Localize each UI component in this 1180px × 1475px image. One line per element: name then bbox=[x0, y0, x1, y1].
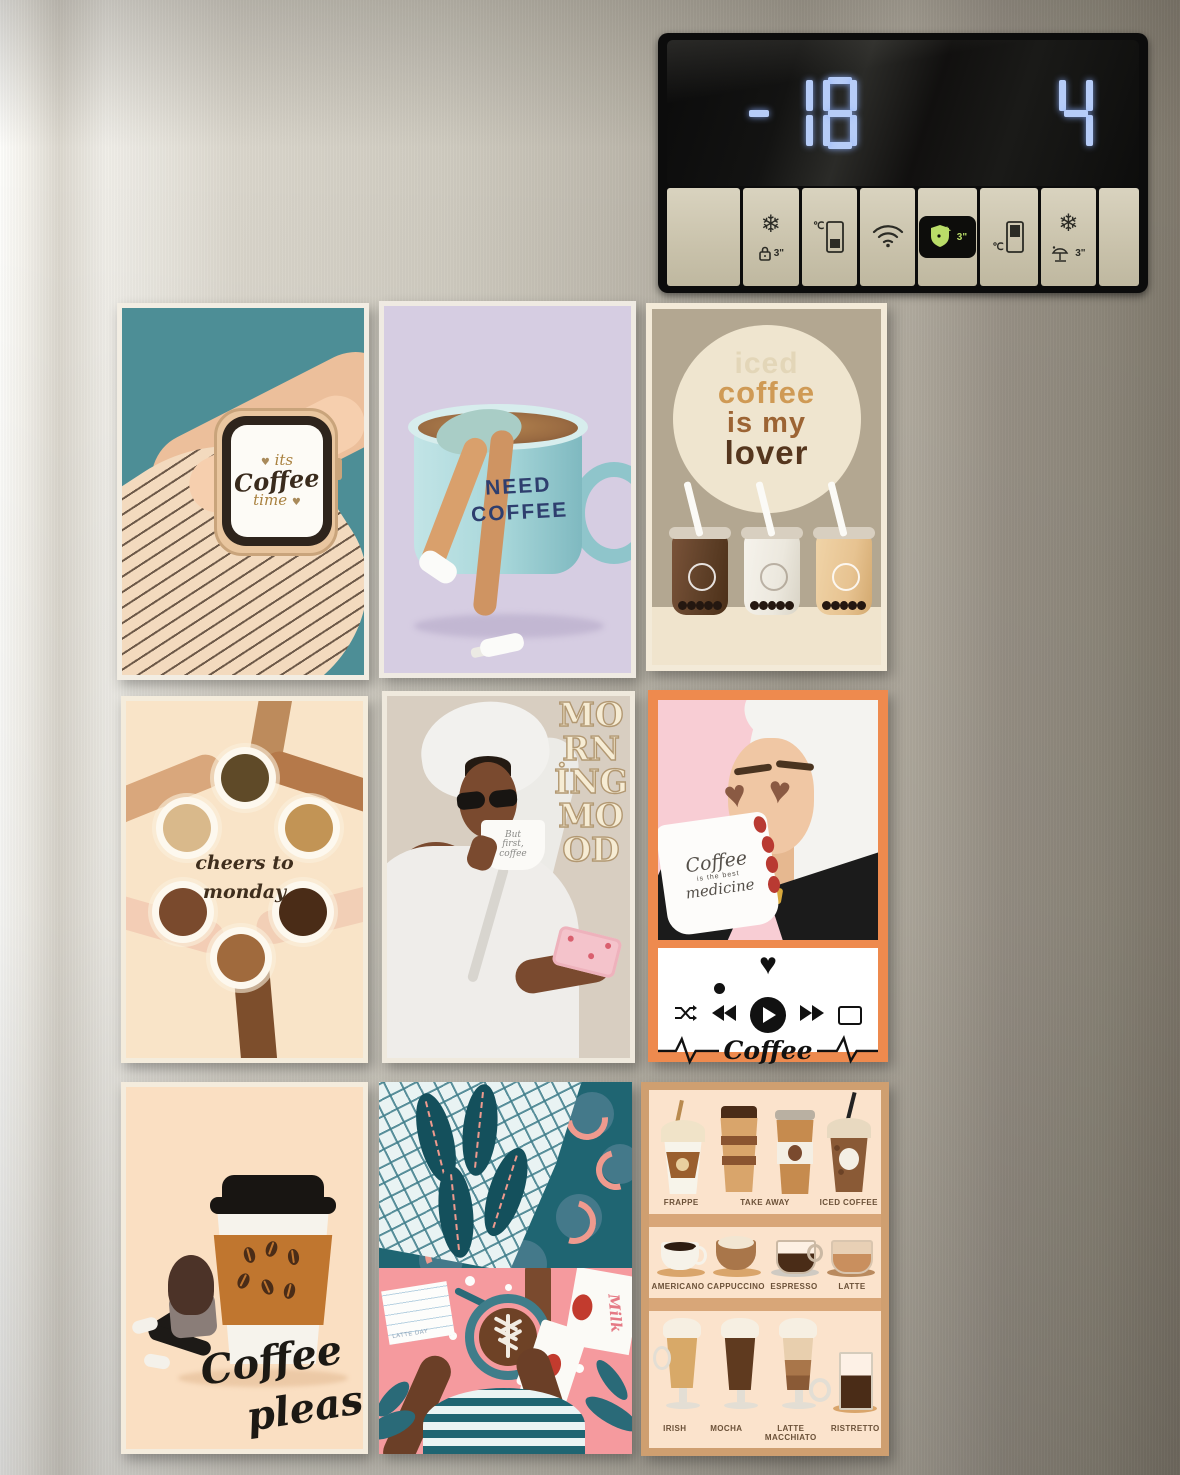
milk-label: Milk bbox=[604, 1293, 625, 1333]
repeat-icon[interactable] bbox=[838, 1006, 862, 1025]
heartbeat-line-right bbox=[817, 1035, 878, 1065]
panel-button-wifi[interactable] bbox=[860, 188, 915, 286]
girl-hair bbox=[168, 1255, 214, 1315]
label-americano: AMERICANO bbox=[649, 1282, 707, 1291]
freezer-minus-sign bbox=[749, 110, 769, 117]
snowflake-icon: ❄ bbox=[761, 213, 781, 237]
takeaway-cup-bean bbox=[771, 1110, 819, 1194]
sneaker bbox=[143, 1353, 171, 1370]
mason-jar-milk bbox=[744, 533, 800, 615]
magnet-card-coffee-types: FRAPPE TAKE AWAY ICED COFFEE AMERICAN bbox=[641, 1082, 889, 1456]
cup-lid-brim bbox=[210, 1197, 336, 1214]
row2-labels: AMERICANO CAPPUCCINO ESPRESSO LATTE bbox=[649, 1282, 881, 1291]
frappe-cup bbox=[659, 1108, 707, 1194]
snowflake-icon: ❄ bbox=[1058, 212, 1078, 236]
magnet-card-iced-coffee-lover: iced coffee is my lover bbox=[646, 303, 887, 671]
picnic-blanket-scene bbox=[379, 1082, 632, 1268]
milk-splash bbox=[505, 1284, 512, 1291]
watch-card-art: ♥ its Coffee time ♥ bbox=[122, 308, 364, 675]
groovy-text: iced coffee is my lover bbox=[652, 349, 881, 470]
label-irish: IRISH bbox=[649, 1424, 701, 1442]
latte-day-note: LATTE DAY bbox=[381, 1281, 455, 1345]
label-latte-macchiato: LATTE MACCHIATO bbox=[752, 1424, 829, 1442]
table-strip bbox=[652, 607, 881, 665]
ristretto-glass bbox=[833, 1342, 877, 1418]
fridge-compartment-icon: ℃ bbox=[993, 221, 1025, 253]
mocha-glass bbox=[715, 1318, 765, 1418]
coffee-cup bbox=[210, 927, 272, 989]
striped-shirt bbox=[423, 1388, 585, 1454]
panel-button-blank-left[interactable] bbox=[667, 188, 740, 286]
coffee-medicine-photo: ♥ ♥ Coffee is the best medicine bbox=[658, 700, 878, 940]
latte-table-scene: LATTE DAY Milk bbox=[379, 1268, 632, 1454]
panel-button-hygiene-fresh[interactable]: 3" bbox=[918, 188, 976, 286]
espresso-glass bbox=[769, 1236, 821, 1278]
cappuccino-cup bbox=[711, 1232, 763, 1278]
magnet-card-coffee-time-watch: ♥ its Coffee time ♥ bbox=[117, 303, 369, 680]
coffee-please-card-art: Coffee please bbox=[126, 1087, 363, 1449]
mug-text: NEED COFFEE bbox=[453, 471, 586, 530]
coffee-cup bbox=[214, 747, 276, 809]
song-title: Coffee bbox=[723, 1036, 812, 1065]
hold-seconds-label: 3" bbox=[1075, 248, 1085, 259]
music-player-panel: ♥ Coffee bbox=[658, 948, 878, 1052]
latte-macchiato-glass bbox=[773, 1318, 823, 1418]
label-ristretto: RISTRETTO bbox=[829, 1424, 881, 1442]
cheers-card-art: cheers to monday bbox=[126, 701, 363, 1058]
freezer-digit-1 bbox=[779, 77, 813, 149]
cheers-text: cheers to monday bbox=[126, 849, 363, 906]
mason-jar-caramel bbox=[816, 533, 872, 615]
row1-labels: FRAPPE TAKE AWAY ICED COFFEE bbox=[649, 1198, 881, 1207]
label-cappuccino: CAPPUCCINO bbox=[707, 1282, 765, 1291]
heartbeat-line-left bbox=[658, 1035, 719, 1065]
label-mocha: MOCHA bbox=[701, 1424, 753, 1442]
freezer-compartment-icon: ℃ bbox=[813, 221, 845, 253]
iced-coffee-cup bbox=[825, 1100, 873, 1194]
need-coffee-card-art: NEED COFFEE bbox=[384, 306, 631, 673]
divider-band bbox=[649, 1214, 881, 1227]
magnet-card-cheers-to-monday: cheers to monday bbox=[121, 696, 368, 1063]
fridge-digit-4 bbox=[1059, 77, 1093, 149]
label-espresso: ESPRESSO bbox=[765, 1282, 823, 1291]
panel-button-freezer-temp[interactable]: ℃ bbox=[802, 188, 857, 286]
previous-track-icon[interactable] bbox=[712, 1005, 736, 1026]
watch-screen: ♥ its Coffee time ♥ bbox=[231, 425, 323, 537]
next-track-icon[interactable] bbox=[800, 1005, 824, 1026]
irish-glass bbox=[657, 1318, 707, 1418]
panel-button-freezer-lock[interactable]: ❄ 3" bbox=[743, 188, 798, 286]
panel-buttons-row: ❄ 3" ℃ 3" ℃ bbox=[667, 188, 1139, 286]
magnet-card-coffee-song: ♥ ♥ Coffee is the best medicine ♥ Coffe bbox=[648, 690, 888, 1062]
hold-seconds-label: 3" bbox=[774, 248, 784, 259]
watch-text-coffee: Coffee bbox=[234, 466, 321, 496]
iced-lover-card-art: iced coffee is my lover bbox=[652, 309, 881, 665]
bean-logo bbox=[570, 1293, 594, 1322]
morning-mood-vertical-text: MO RN İNG MO OD bbox=[554, 698, 628, 866]
celsius-label: ℃ bbox=[993, 242, 1004, 253]
hold-seconds-label: 3" bbox=[957, 232, 967, 243]
americano-cup bbox=[655, 1236, 707, 1278]
vacation-umbrella-icon: 3" bbox=[1051, 245, 1085, 262]
sunglasses-lens bbox=[488, 789, 518, 809]
takeaway-cup bbox=[715, 1104, 763, 1194]
mason-jar-chocolate bbox=[672, 533, 728, 615]
latte-cup bbox=[825, 1236, 877, 1278]
shield-icon bbox=[928, 223, 954, 251]
row3-labels: IRISH MOCHA LATTE MACCHIATO RISTRETTO bbox=[649, 1424, 881, 1442]
label-iced-coffee: ICED COFFEE bbox=[817, 1198, 881, 1207]
magnet-card-latte-day: LATTE DAY Milk bbox=[379, 1082, 632, 1454]
milk-box: Milk bbox=[564, 1268, 632, 1355]
divider-band bbox=[649, 1298, 881, 1311]
wifi-icon bbox=[871, 222, 905, 253]
hygiene-fresh-active-chip: 3" bbox=[919, 216, 976, 258]
shuffle-icon[interactable] bbox=[674, 1004, 698, 1027]
label-latte: LATTE bbox=[823, 1282, 881, 1291]
magnet-card-coffee-please: Coffee please bbox=[121, 1082, 368, 1454]
label-frappe: FRAPPE bbox=[649, 1198, 713, 1207]
magnet-card-morning-mood: But first, coffee MO RN İNG MO OD bbox=[382, 691, 635, 1063]
lock-icon: 3" bbox=[758, 246, 784, 261]
coffee-types-chart: FRAPPE TAKE AWAY ICED COFFEE AMERICAN bbox=[649, 1090, 881, 1448]
panel-button-vacation[interactable]: ❄ 3" bbox=[1041, 188, 1096, 286]
like-heart-icon[interactable]: ♥ bbox=[658, 950, 878, 980]
freezer-digit-8 bbox=[823, 77, 857, 149]
fridge-control-panel: ❄ 3" ℃ 3" ℃ bbox=[658, 33, 1148, 293]
milk-splash bbox=[465, 1276, 475, 1286]
celsius-label: ℃ bbox=[813, 221, 824, 232]
play-button[interactable] bbox=[750, 997, 786, 1033]
morning-mood-card-art: But first, coffee MO RN İNG MO OD bbox=[387, 696, 630, 1058]
panel-button-fridge-temp[interactable]: ℃ bbox=[980, 188, 1038, 286]
temperature-display bbox=[667, 40, 1139, 186]
label-take-away: TAKE AWAY bbox=[713, 1198, 816, 1207]
panel-button-blank-right[interactable] bbox=[1099, 188, 1139, 286]
magnet-card-need-coffee: NEED COFFEE bbox=[379, 301, 636, 678]
